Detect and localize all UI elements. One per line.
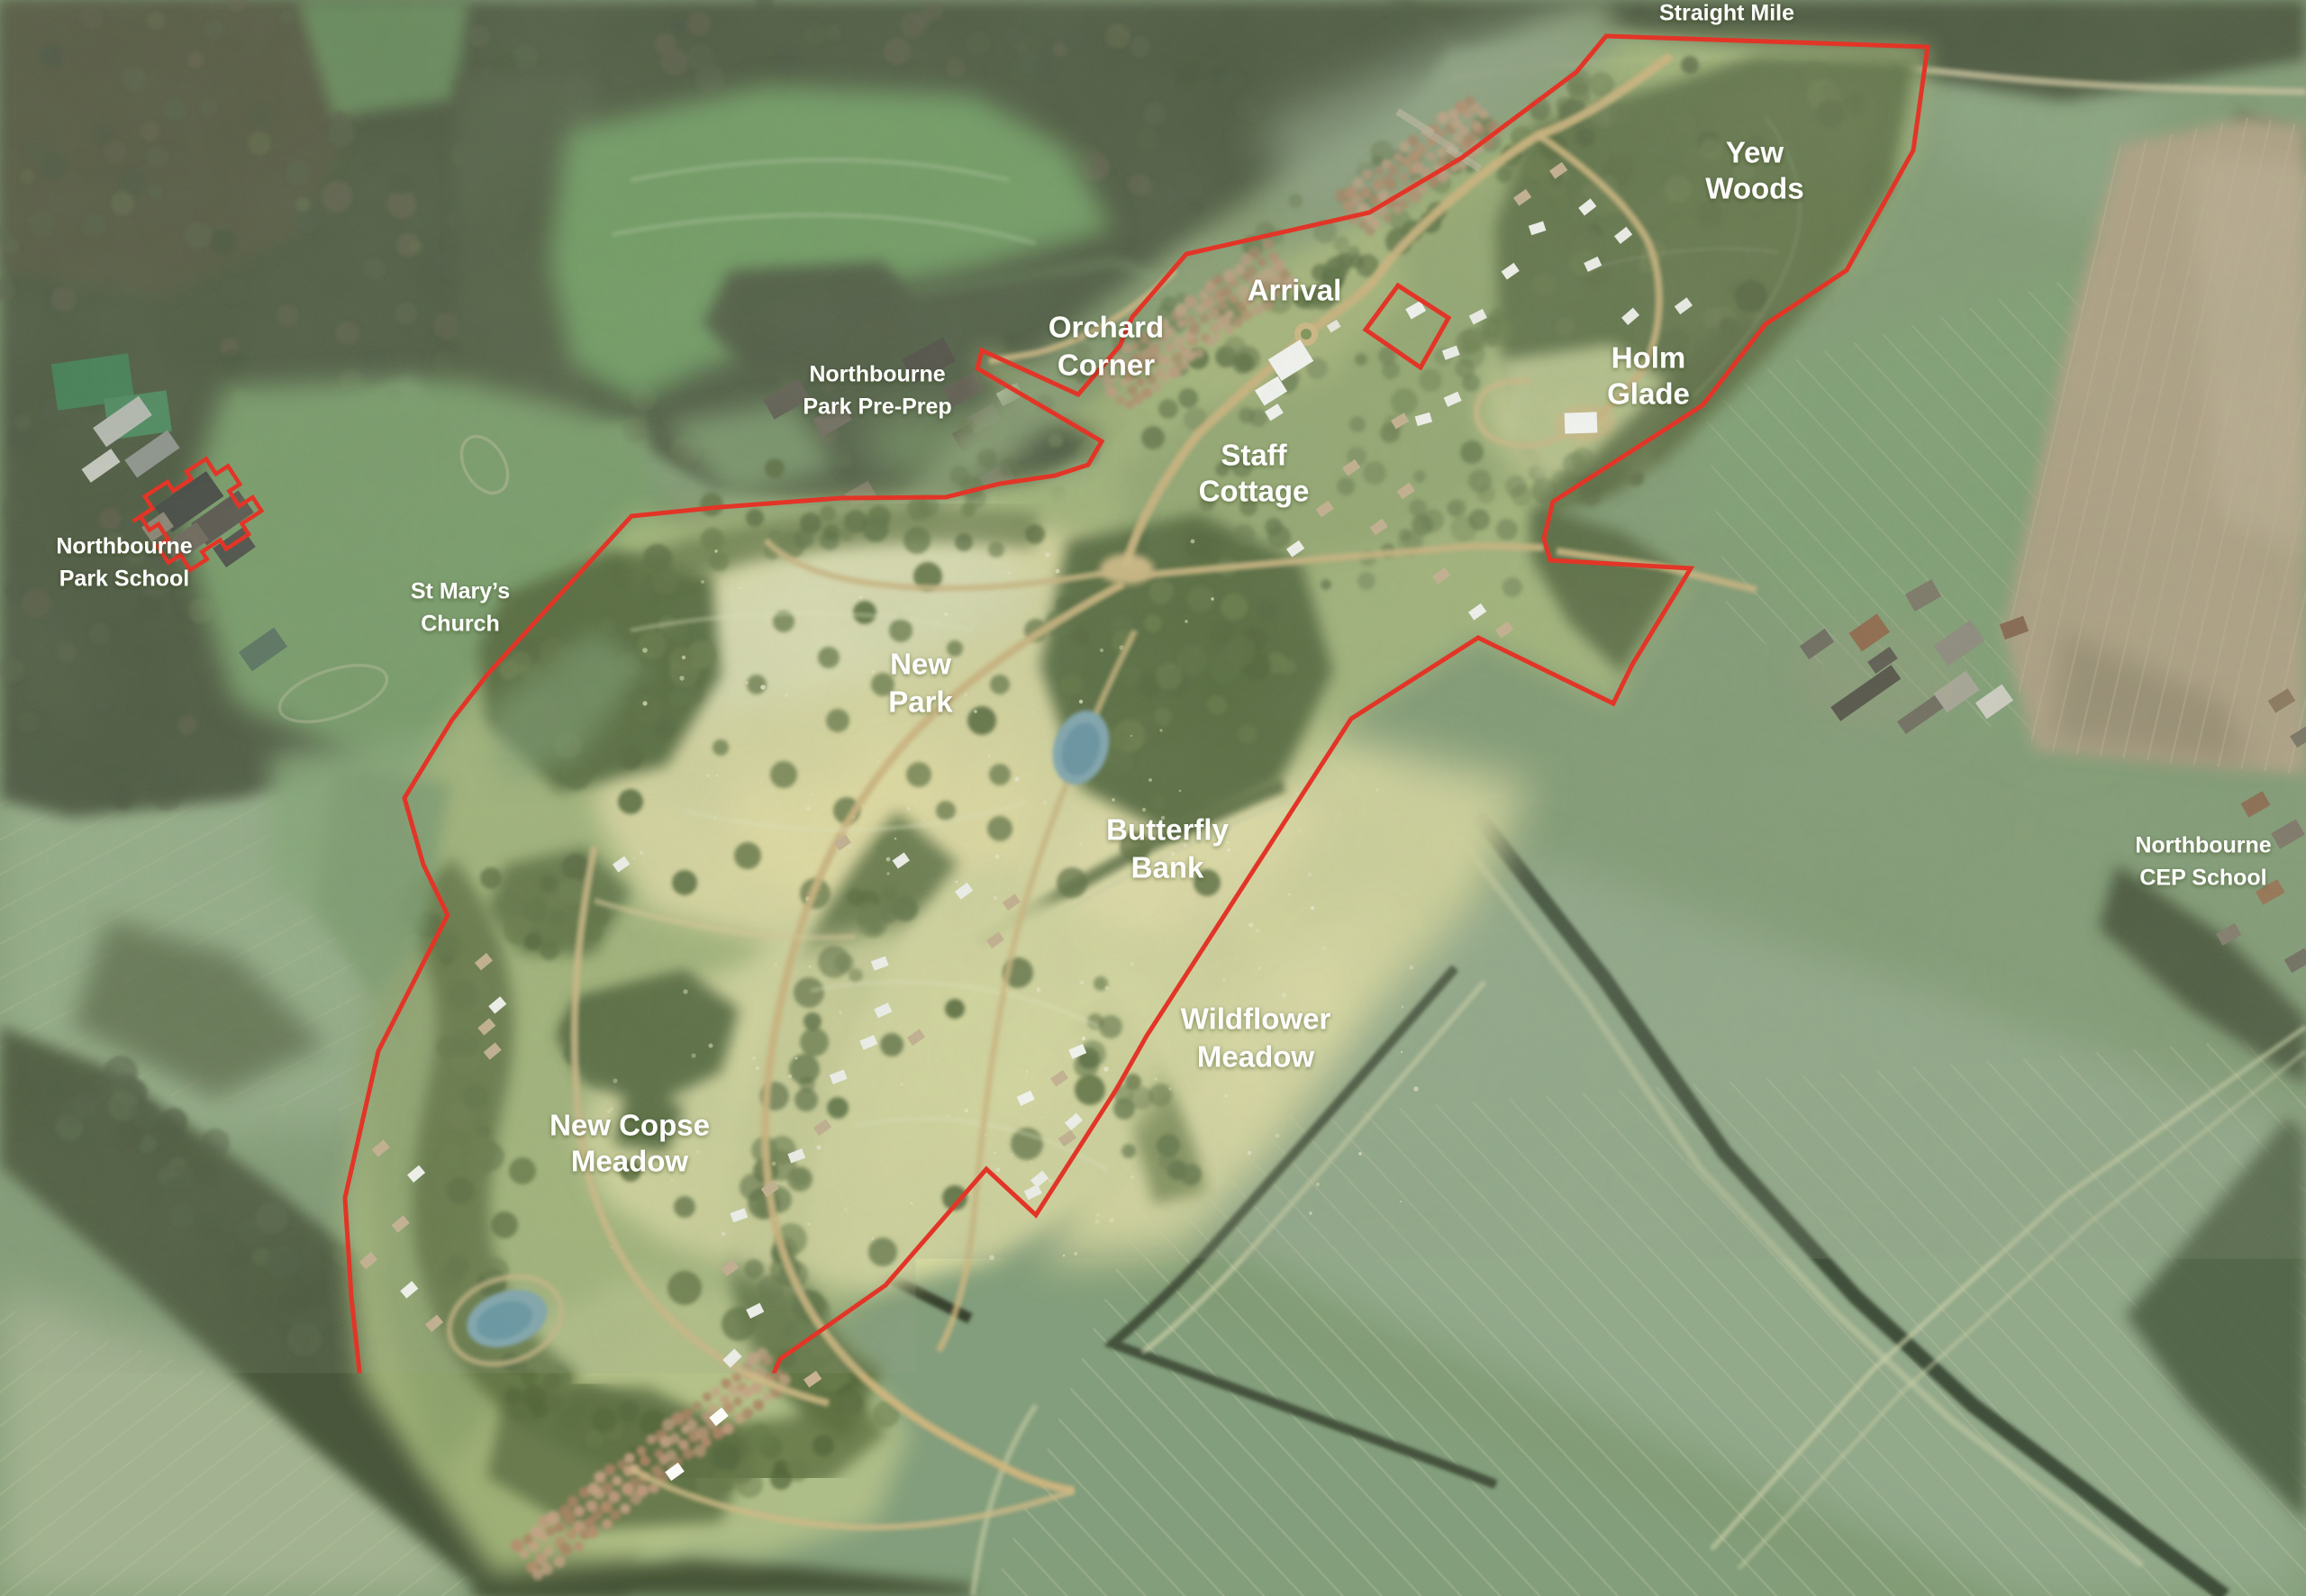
svg-text:Butterfly: Butterfly: [1106, 813, 1229, 847]
svg-text:Northbourne: Northbourne: [56, 534, 192, 559]
svg-text:St Mary’s: St Mary’s: [411, 579, 510, 604]
svg-text:CEP School: CEP School: [2139, 866, 2266, 891]
svg-text:Meadow: Meadow: [571, 1145, 689, 1178]
svg-text:Straight Mile: Straight Mile: [1659, 1, 1794, 26]
svg-text:Northbourne: Northbourne: [2135, 833, 2271, 858]
svg-text:Arrival: Arrival: [1248, 274, 1342, 307]
svg-text:Glade: Glade: [1607, 377, 1690, 411]
svg-text:Cottage: Cottage: [1199, 475, 1310, 508]
svg-text:New: New: [890, 648, 951, 681]
svg-text:Bank: Bank: [1131, 851, 1204, 884]
svg-text:Holm: Holm: [1611, 341, 1686, 375]
svg-text:Yew: Yew: [1726, 136, 1784, 169]
svg-text:Park: Park: [888, 685, 953, 719]
svg-text:Northbourne: Northbourne: [809, 362, 945, 387]
svg-text:Orchard: Orchard: [1049, 311, 1164, 344]
svg-text:Meadow: Meadow: [1197, 1040, 1315, 1074]
svg-text:Church: Church: [421, 612, 500, 637]
svg-text:New Copse: New Copse: [549, 1109, 710, 1142]
svg-text:Park Pre-Prep: Park Pre-Prep: [803, 394, 951, 420]
svg-text:Wildflower: Wildflower: [1181, 1002, 1331, 1036]
svg-text:Cherry: Cherry: [537, 1422, 633, 1455]
svg-text:Staff: Staff: [1221, 439, 1287, 472]
svg-text:Grove: Grove: [541, 1458, 627, 1492]
svg-text:Corner: Corner: [1058, 349, 1155, 382]
svg-text:Woods: Woods: [1705, 172, 1803, 205]
svg-text:Park School: Park School: [59, 567, 190, 592]
